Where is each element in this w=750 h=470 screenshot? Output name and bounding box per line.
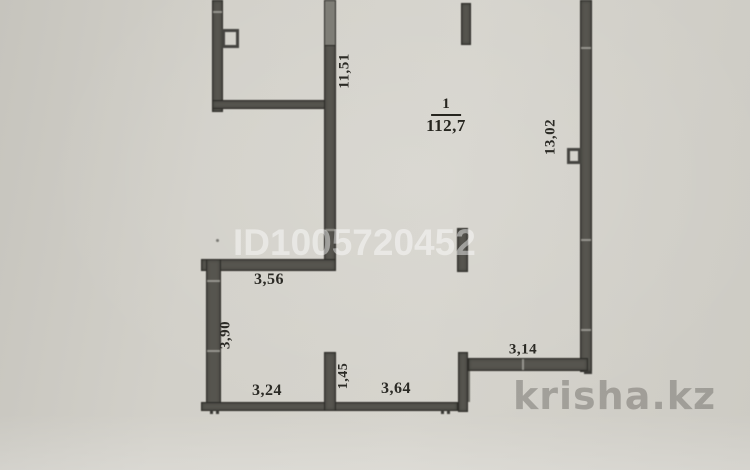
wall-stub-top xyxy=(461,3,471,45)
window-segment-center-wall xyxy=(324,0,336,46)
dimension-label-lower-right-width: 3,14 xyxy=(509,343,537,358)
wall-joint xyxy=(581,239,591,241)
dimension-label-upper-width: 3,56 xyxy=(254,272,284,288)
room-area: 112,7 xyxy=(426,116,466,136)
dimension-tick xyxy=(216,410,219,414)
shaft-box-left xyxy=(222,29,239,48)
wall-top-left-vertical xyxy=(212,0,223,112)
wall-joint xyxy=(522,359,524,370)
dimension-tick xyxy=(441,410,444,414)
wall-joint xyxy=(213,11,222,13)
room-label: 1 112,7 xyxy=(426,96,466,135)
room-number: 1 xyxy=(431,96,461,116)
dimension-label-lower-left-width: 3,24 xyxy=(252,383,282,399)
dimension-tick xyxy=(210,410,213,414)
krisha-logo-watermark: krisha.kz xyxy=(513,377,716,415)
dimension-tick xyxy=(447,410,450,414)
dimension-label-top-room-height: 11,51 xyxy=(338,53,353,88)
wall-joint xyxy=(581,47,591,49)
wall-top-room-bottom xyxy=(212,100,336,109)
wall-lower-right-horizontal xyxy=(468,358,588,371)
wall-lower-mid-vertical xyxy=(324,352,336,411)
wall-right-vertical xyxy=(580,0,592,372)
listing-id-watermark: ID1005720452 xyxy=(233,224,476,261)
floor-plan-photo: 11,51 13,02 3,56 3,90 3,24 1,45 3,64 3,1… xyxy=(0,0,750,470)
wall-joint xyxy=(207,350,220,352)
dimension-label-left-lower-height: 3,90 xyxy=(219,321,234,349)
opening-line xyxy=(468,371,470,402)
dimension-label-lower-opening-height: 1,45 xyxy=(337,363,351,390)
dimension-label-right-side-height: 13,02 xyxy=(544,119,559,155)
dimension-label-lower-mid-width: 3,64 xyxy=(381,381,411,397)
shaft-box-right xyxy=(567,148,581,164)
wall-step-vertical xyxy=(458,352,468,412)
stray-mark xyxy=(216,239,219,242)
wall-joint xyxy=(207,280,220,282)
wall-joint xyxy=(581,329,591,331)
